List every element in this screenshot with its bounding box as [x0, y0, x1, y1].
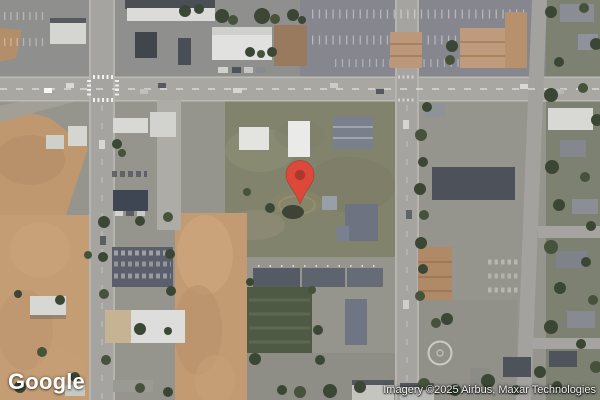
marker-inner-dot [295, 170, 305, 180]
map-canvas[interactable]: Google Imagery ©2025 Airbus, Maxar Techn… [0, 0, 600, 400]
imagery-attribution: Imagery ©2025 Airbus, Maxar Technologies [383, 384, 596, 396]
google-logo[interactable]: Google [8, 369, 85, 395]
satellite-imagery [0, 0, 600, 400]
